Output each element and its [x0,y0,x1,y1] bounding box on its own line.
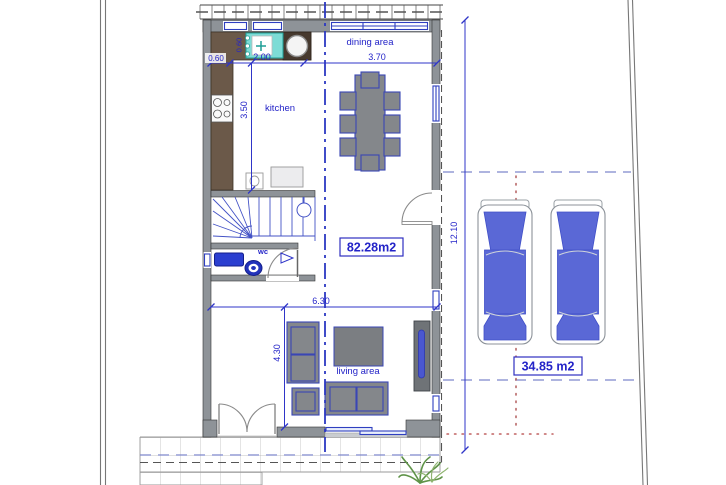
chair [340,138,356,156]
car [551,200,605,344]
terrace-tiles [140,437,440,485]
wc-wall [211,275,315,281]
dim-kitchen-width: 2.00 [253,52,271,62]
wc-door-arc [268,248,298,278]
wc-door-opening [266,276,299,282]
dim-counter-depth: 0.60 [235,38,244,53]
stove [212,95,233,122]
garage-side-door [402,190,441,225]
kitchen-label: kitchen [265,103,295,114]
tv [419,330,425,378]
dining-area-label: dining area [346,37,394,48]
wc-vanity [215,253,244,266]
dim-kitchen-depth: 3.50 [239,101,249,119]
floor-area-value: 82.28m2 [347,241,396,255]
chair [361,155,379,171]
car [478,200,532,344]
dining-set [340,72,400,171]
entrance-double-door [217,404,277,436]
fridge [271,167,303,187]
chair [384,92,400,110]
floor-plan-canvas: dining area kitchen wc living area 82.28… [0,0,726,485]
kitchen-stair-wall [211,191,315,198]
chair [361,72,379,88]
stair-half-wall [211,243,298,249]
chair [384,115,400,133]
staircase [213,197,315,241]
bottom-right-corner-pier [406,420,440,437]
dim-counter-width: 0.60 [208,54,224,63]
chair [340,92,356,110]
floor-plan-drawing: dining area kitchen wc living area 82.28… [0,0,726,485]
living-area-label: living area [336,366,380,377]
sliding-window [325,428,407,438]
window [204,252,212,268]
sink-bowl [287,36,308,57]
wc-label: wc [257,247,268,256]
dim-plot-depth: 12.10 [449,222,459,245]
right-boundary-line [628,0,643,485]
parking-area [478,200,605,344]
bottom-left-corner-pier [203,420,217,437]
top-edge-band [196,5,446,19]
right-boundary-line [633,0,648,485]
chair [340,115,356,133]
door-leaf [402,222,432,225]
column-symbol [297,203,311,217]
dim-living-width: 6.30 [312,296,330,306]
chair [384,138,400,156]
dim-dining-width: 3.70 [368,52,386,62]
coffee-table [334,327,383,366]
door-swing-arrow-icon [281,253,293,263]
parking-area-value: 34.85 m2 [522,360,575,374]
dim-living-depth: 4.30 [272,344,282,362]
